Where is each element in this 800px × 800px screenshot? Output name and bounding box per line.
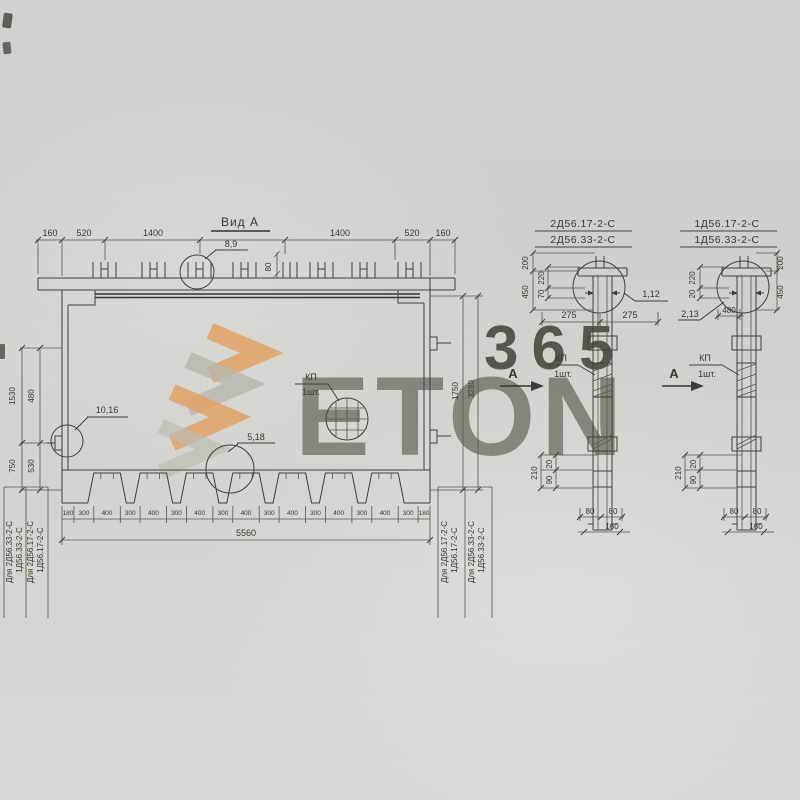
section-arrowhead-2 — [691, 381, 704, 391]
sv1-275r: 275 — [622, 310, 637, 320]
sv1-20: 20 — [545, 459, 554, 468]
left-row-0: Для 2Д56.33-2-С — [5, 521, 14, 583]
sv2-90: 90 — [689, 475, 698, 484]
left-dimension-lines: 1530 480 750 530 — [8, 345, 62, 493]
sv2-200: 200 — [776, 256, 785, 270]
sv1-title-1: 2Д56.17-2-С — [550, 218, 615, 230]
sv2-480: 480 — [722, 306, 736, 315]
tooth-dim-16: 180 — [419, 510, 430, 517]
tooth-dim-15: 300 — [403, 510, 414, 517]
sv1-160: 160 — [605, 522, 619, 531]
side-view-2: 1Д56.17-2-С 1Д56.33-2-С 2,1 — [674, 218, 785, 535]
sv1-450: 450 — [521, 285, 530, 299]
detail-callout-1-12: 1,12 — [573, 261, 668, 313]
dim-3280: 3280 — [467, 380, 476, 398]
tooth-dim-1: 300 — [78, 510, 89, 517]
top-dim-160l: 160 — [42, 228, 57, 238]
tooth-dim-4: 400 — [148, 510, 159, 517]
dim-530: 530 — [27, 459, 36, 473]
tooth-dim-7: 300 — [217, 510, 228, 517]
dim-1530: 1530 — [8, 387, 17, 405]
left-variant-labels: Для 2Д56.33-2-С 1Д56.33-2-С Для 2Д56.17-… — [4, 487, 48, 618]
kp-qty-main: 1шт. — [302, 387, 320, 397]
sv1-bottom-dims: 210 20 90 — [530, 452, 598, 491]
tooth-dim-8: 400 — [241, 510, 252, 517]
sv2-kp: КП 1шт. — [689, 353, 756, 397]
sv2-left-dims: 220 20 — [688, 264, 729, 301]
overall-width-dim: 5560 — [59, 523, 433, 545]
view-title: Вид А — [221, 215, 259, 229]
sv1-kp-label: КП — [555, 353, 567, 363]
right-row-1: 1Д56.17-2-С — [450, 527, 459, 573]
section-arrowhead-1 — [531, 381, 544, 391]
main-view: Вид А 80 — [4, 215, 492, 618]
sv2-title-1: 1Д56.17-2-С — [694, 218, 759, 230]
sv2-450: 450 — [776, 285, 785, 299]
tooth-dim-13: 300 — [356, 510, 367, 517]
tooth-dim-0: 180 — [63, 510, 74, 517]
detail-label-2-13: 2,13 — [681, 309, 699, 319]
tooth-dim-9: 300 — [264, 510, 275, 517]
dim-1750: 1750 — [451, 382, 460, 400]
sv1-220: 220 — [537, 271, 546, 285]
sv1-left-dims: 200 450 220 70 — [521, 250, 595, 313]
sv2-right-dims: 200 450 — [756, 250, 785, 313]
sv2-foot-dims: 80 80 160 — [721, 507, 774, 535]
tooth-dim-11: 300 — [310, 510, 321, 517]
sv1-70: 70 — [537, 289, 546, 298]
side-view-1: 2Д56.17-2-С 2Д56.33-2-С — [521, 218, 668, 535]
right-dimension-lines: 1750 3280 — [430, 293, 483, 493]
technical-drawing: Вид А 80 — [0, 0, 800, 800]
sv2-20t: 20 — [688, 289, 697, 298]
detail-label-1-12: 1,12 — [642, 289, 660, 299]
detail-callout-10-16: 10,16 — [51, 405, 128, 457]
sv2-bottom-dims: 210 20 90 — [674, 452, 742, 491]
sv2-20b: 20 — [689, 459, 698, 468]
right-row-0: Для 2Д56.17-2-С — [440, 521, 449, 583]
rebar-ticks — [93, 262, 421, 278]
left-row-1: 1Д56.33-2-С — [15, 527, 24, 573]
sv2-dim-480: 480 — [715, 306, 744, 320]
sv1-80r: 80 — [609, 507, 618, 516]
detail-callout-5-18: 5,18 — [206, 432, 275, 493]
top-beam: 80 — [38, 251, 455, 298]
sv2-160: 160 — [749, 522, 763, 531]
tooth-dim-10: 400 — [287, 510, 298, 517]
tooth-dim-2: 400 — [102, 510, 113, 517]
top-dim-520l: 520 — [76, 228, 91, 238]
tooth-dim-3: 300 — [125, 510, 136, 517]
sv2-title-2: 1Д56.33-2-С — [694, 234, 759, 246]
sv1-foot-dims: 80 80 160 — [577, 507, 630, 535]
top-dim-520r: 520 — [404, 228, 419, 238]
sv2-kp-qty: 1шт. — [698, 369, 716, 379]
detail-label-8-9: 8,9 — [225, 239, 238, 249]
detail-label-5-18: 5,18 — [247, 432, 265, 442]
right-row-2: Для 2Д56.33-2-С — [467, 521, 476, 583]
sv2-80r: 80 — [753, 507, 762, 516]
tooth-dim-5: 300 — [171, 510, 182, 517]
sv1-column — [578, 256, 627, 530]
left-row-2: Для 2Д56.17-2-С — [26, 521, 35, 583]
tooth-dimension-row: 180 300 400 300 400 300 400 300 400 300 … — [62, 506, 430, 523]
sv1-80l: 80 — [586, 507, 595, 516]
tooth-dim-12: 400 — [333, 510, 344, 517]
detail-callout-8-9: 8,9 — [180, 239, 248, 289]
top-dim-1400r: 1400 — [330, 228, 350, 238]
top-dim-1400l: 1400 — [143, 228, 163, 238]
sv1-kp-qty: 1шт. — [554, 369, 572, 379]
detail-label-10-16: 10,16 — [96, 405, 119, 415]
sv1-90: 90 — [545, 475, 554, 484]
scanned-drawing-sheet: 365 ETON Вид А — [0, 0, 800, 800]
sv2-kp-label: КП — [699, 353, 711, 363]
dim-750: 750 — [8, 459, 17, 473]
left-row-3: 1Д56.17-2-С — [36, 527, 45, 573]
section-letter-2: А — [669, 366, 679, 381]
top-dim-160r: 160 — [435, 228, 450, 238]
sv1-title-2: 2Д56.33-2-С — [550, 234, 615, 246]
dim-5560: 5560 — [236, 528, 256, 538]
tooth-dim-6: 400 — [194, 510, 205, 517]
sv1-210: 210 — [530, 466, 539, 480]
sv1-dim-275: 275 275 — [539, 310, 661, 326]
panel-body — [47, 278, 451, 503]
dim-480: 480 — [27, 389, 36, 403]
right-row-3: 1Д56.33-2-С — [477, 527, 486, 573]
right-variant-labels: Для 2Д56.17-2-С 1Д56.17-2-С Для 2Д56.33-… — [438, 487, 492, 618]
sv2-80l: 80 — [730, 507, 739, 516]
tooth-dim-14: 400 — [380, 510, 391, 517]
sv1-200: 200 — [521, 256, 530, 270]
kp-callout-main: КП 1шт. — [295, 372, 368, 440]
dim-80: 80 — [264, 262, 273, 271]
section-arrow-a-1: А — [500, 366, 544, 391]
sv2-220: 220 — [688, 271, 697, 285]
sv2-column — [722, 256, 771, 530]
sv1-275l: 275 — [561, 310, 576, 320]
sv2-210: 210 — [674, 466, 683, 480]
kp-label-main: КП — [305, 372, 317, 382]
sv1-kp: КП 1шт. — [545, 353, 612, 397]
section-letter-1: А — [508, 366, 518, 381]
